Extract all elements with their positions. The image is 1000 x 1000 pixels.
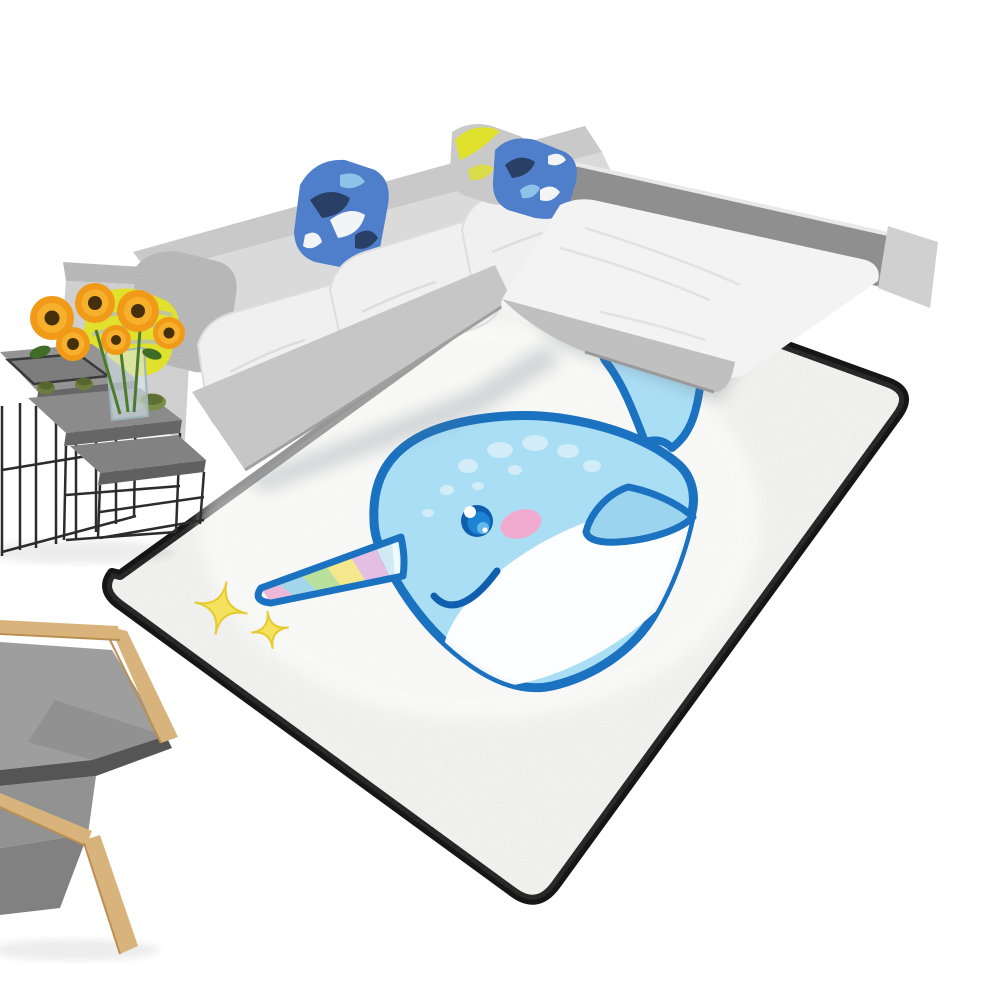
narwhal-eye xyxy=(461,505,493,537)
sunflower xyxy=(56,327,90,361)
sunflower xyxy=(101,325,131,355)
sunflower xyxy=(117,290,159,332)
sunflower xyxy=(153,317,185,349)
product-photo xyxy=(0,0,1000,1000)
sunflower xyxy=(75,283,115,323)
